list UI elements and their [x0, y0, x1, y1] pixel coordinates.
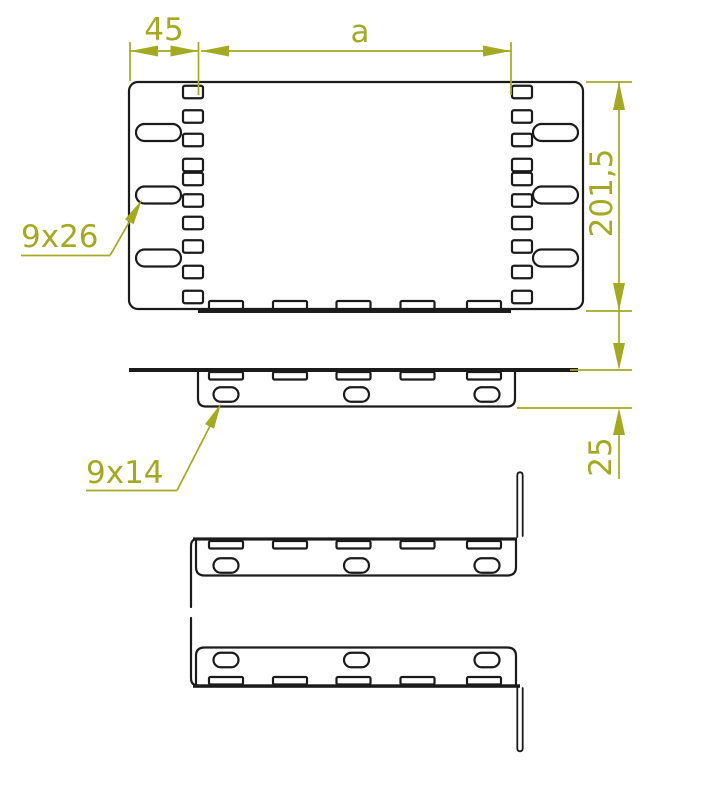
flange-slot: [337, 372, 371, 380]
arrowhead: [613, 283, 625, 311]
flange-slot: [209, 541, 243, 549]
knockout-square: [512, 194, 532, 207]
flange-slot: [467, 541, 501, 549]
knockout-square: [512, 134, 532, 147]
flange-slot: [467, 677, 501, 685]
oblong-slot-9x14: [475, 558, 500, 573]
plate-outline: [129, 82, 583, 309]
flange-slot: [401, 677, 435, 685]
label-slot-9x26: 9x26: [21, 219, 99, 255]
knockout-square: [512, 173, 532, 186]
arrowhead: [613, 82, 625, 110]
oblong-slot-9x26: [136, 250, 181, 267]
knockout-square: [183, 173, 203, 186]
dim-a-label: a: [351, 14, 370, 50]
top-view: [129, 82, 583, 313]
flange-slot: [209, 677, 243, 685]
knockout-square: [183, 86, 203, 99]
oblong-slot-9x14: [214, 387, 239, 402]
arrowhead: [483, 46, 511, 57]
oblong-slot-9x14: [344, 558, 369, 573]
oblong-slot-9x14: [214, 558, 239, 573]
flange-slot: [209, 372, 243, 380]
flange-slot-group: [209, 677, 501, 685]
oblong-slot-9x26: [533, 124, 578, 141]
oblong-slot-9x26: [136, 124, 181, 141]
knockout-square: [512, 110, 532, 123]
flange-slot: [273, 677, 307, 685]
knockout-square: [183, 240, 203, 253]
upstand-flange: [517, 472, 522, 537]
oblong-slot-9x14: [214, 653, 239, 668]
oblong-slot-9x26: [136, 187, 181, 204]
knockout-square: [512, 159, 532, 172]
flange-slot: [401, 541, 435, 549]
dim-45-label: 45: [144, 12, 183, 48]
knockout-square: [183, 291, 203, 304]
arrowhead: [613, 408, 625, 435]
knockout-square: [512, 240, 532, 253]
z-profile-top: [191, 472, 523, 607]
flange-slot: [401, 372, 435, 380]
flange-slot: [467, 372, 501, 380]
knockout-square: [183, 194, 203, 207]
knockout-square: [183, 110, 203, 123]
flange-slot-group: [209, 372, 501, 380]
oblong-slot-9x14: [344, 387, 369, 402]
flange-oblong-group: [214, 387, 500, 402]
knockout-square-group: [183, 86, 532, 304]
leader-arrowhead: [125, 200, 142, 225]
flange-oblong-group: [214, 653, 500, 668]
arrowhead: [613, 343, 625, 370]
flange-slot: [337, 677, 371, 685]
dim-height-label: 201,5: [584, 149, 620, 238]
knockout-square: [512, 291, 532, 304]
flange-slot: [273, 541, 307, 549]
arrowhead: [201, 46, 229, 57]
knockout-square: [183, 159, 203, 172]
flange-slot: [337, 541, 371, 549]
dim-flange-height-label: 25: [583, 437, 619, 476]
oblong-slot-9x14: [475, 387, 500, 402]
label-slot-9x14: 9x14: [86, 455, 164, 491]
knockout-square: [183, 266, 203, 279]
oblong-slot-9x14: [344, 653, 369, 668]
oblong-slot-9x26: [533, 250, 578, 267]
knockout-square: [512, 266, 532, 279]
technical-drawing: 45 a 201,5 25 9x26 9x14: [0, 0, 718, 795]
knockout-square: [183, 217, 203, 230]
flange-slot-group: [209, 541, 501, 549]
leader-line: [177, 425, 211, 491]
fold-edge-line: [193, 684, 520, 688]
dimensions: 45 a 201,5 25 9x26 9x14: [21, 12, 632, 491]
oblong-slot-9x26: [533, 187, 578, 204]
knockout-square: [512, 86, 532, 99]
side-view: [129, 368, 578, 407]
flange-slot: [273, 372, 307, 380]
knockout-square: [183, 134, 203, 147]
leader-line: [110, 222, 130, 256]
flange-oblong-group: [214, 558, 500, 573]
oblong-slot-9x14: [475, 653, 500, 668]
downstand-flange: [517, 688, 522, 751]
knockout-square: [512, 217, 532, 230]
z-profile-bottom: [191, 618, 523, 751]
